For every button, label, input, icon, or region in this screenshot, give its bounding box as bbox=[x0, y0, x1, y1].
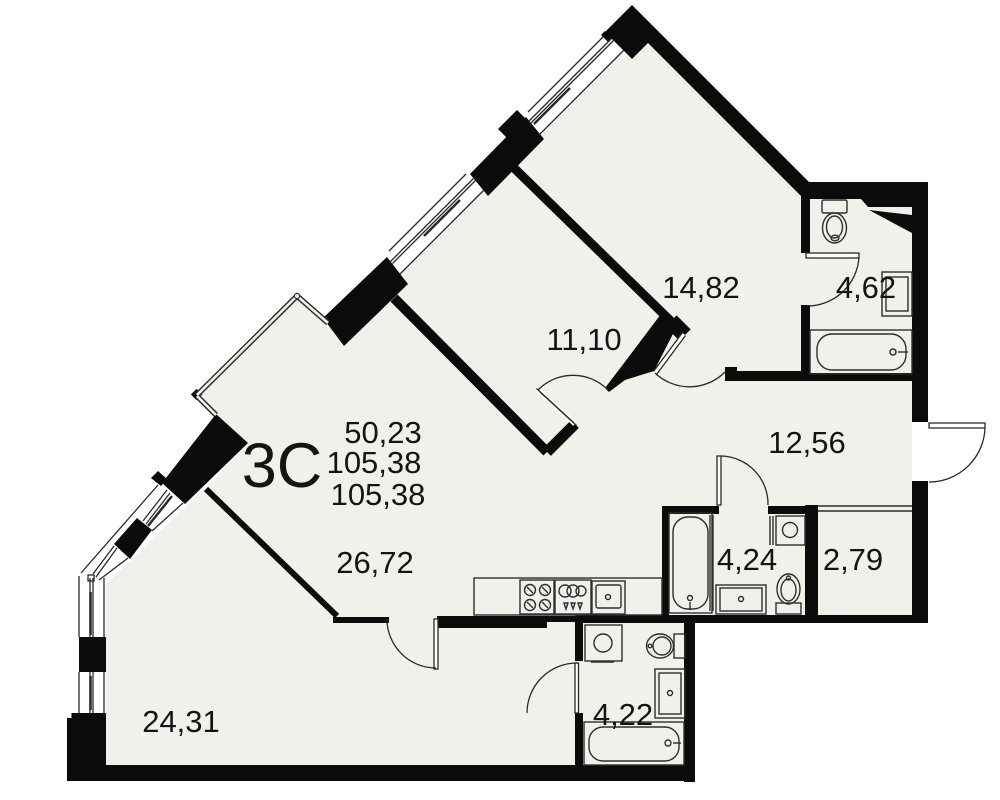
svg-text:12,56: 12,56 bbox=[768, 425, 846, 460]
svg-text:105,38: 105,38 bbox=[327, 445, 422, 480]
svg-text:4,62: 4,62 bbox=[836, 270, 896, 305]
svg-text:4,22: 4,22 bbox=[593, 697, 653, 732]
svg-text:14,82: 14,82 bbox=[662, 270, 740, 305]
svg-text:3С: 3С bbox=[242, 431, 323, 501]
svg-text:26,72: 26,72 bbox=[336, 545, 414, 580]
svg-text:24,31: 24,31 bbox=[142, 704, 220, 739]
svg-text:11,10: 11,10 bbox=[546, 322, 621, 357]
svg-text:2,79: 2,79 bbox=[823, 542, 883, 577]
svg-text:4,24: 4,24 bbox=[717, 542, 777, 577]
svg-text:105,38: 105,38 bbox=[331, 477, 426, 512]
